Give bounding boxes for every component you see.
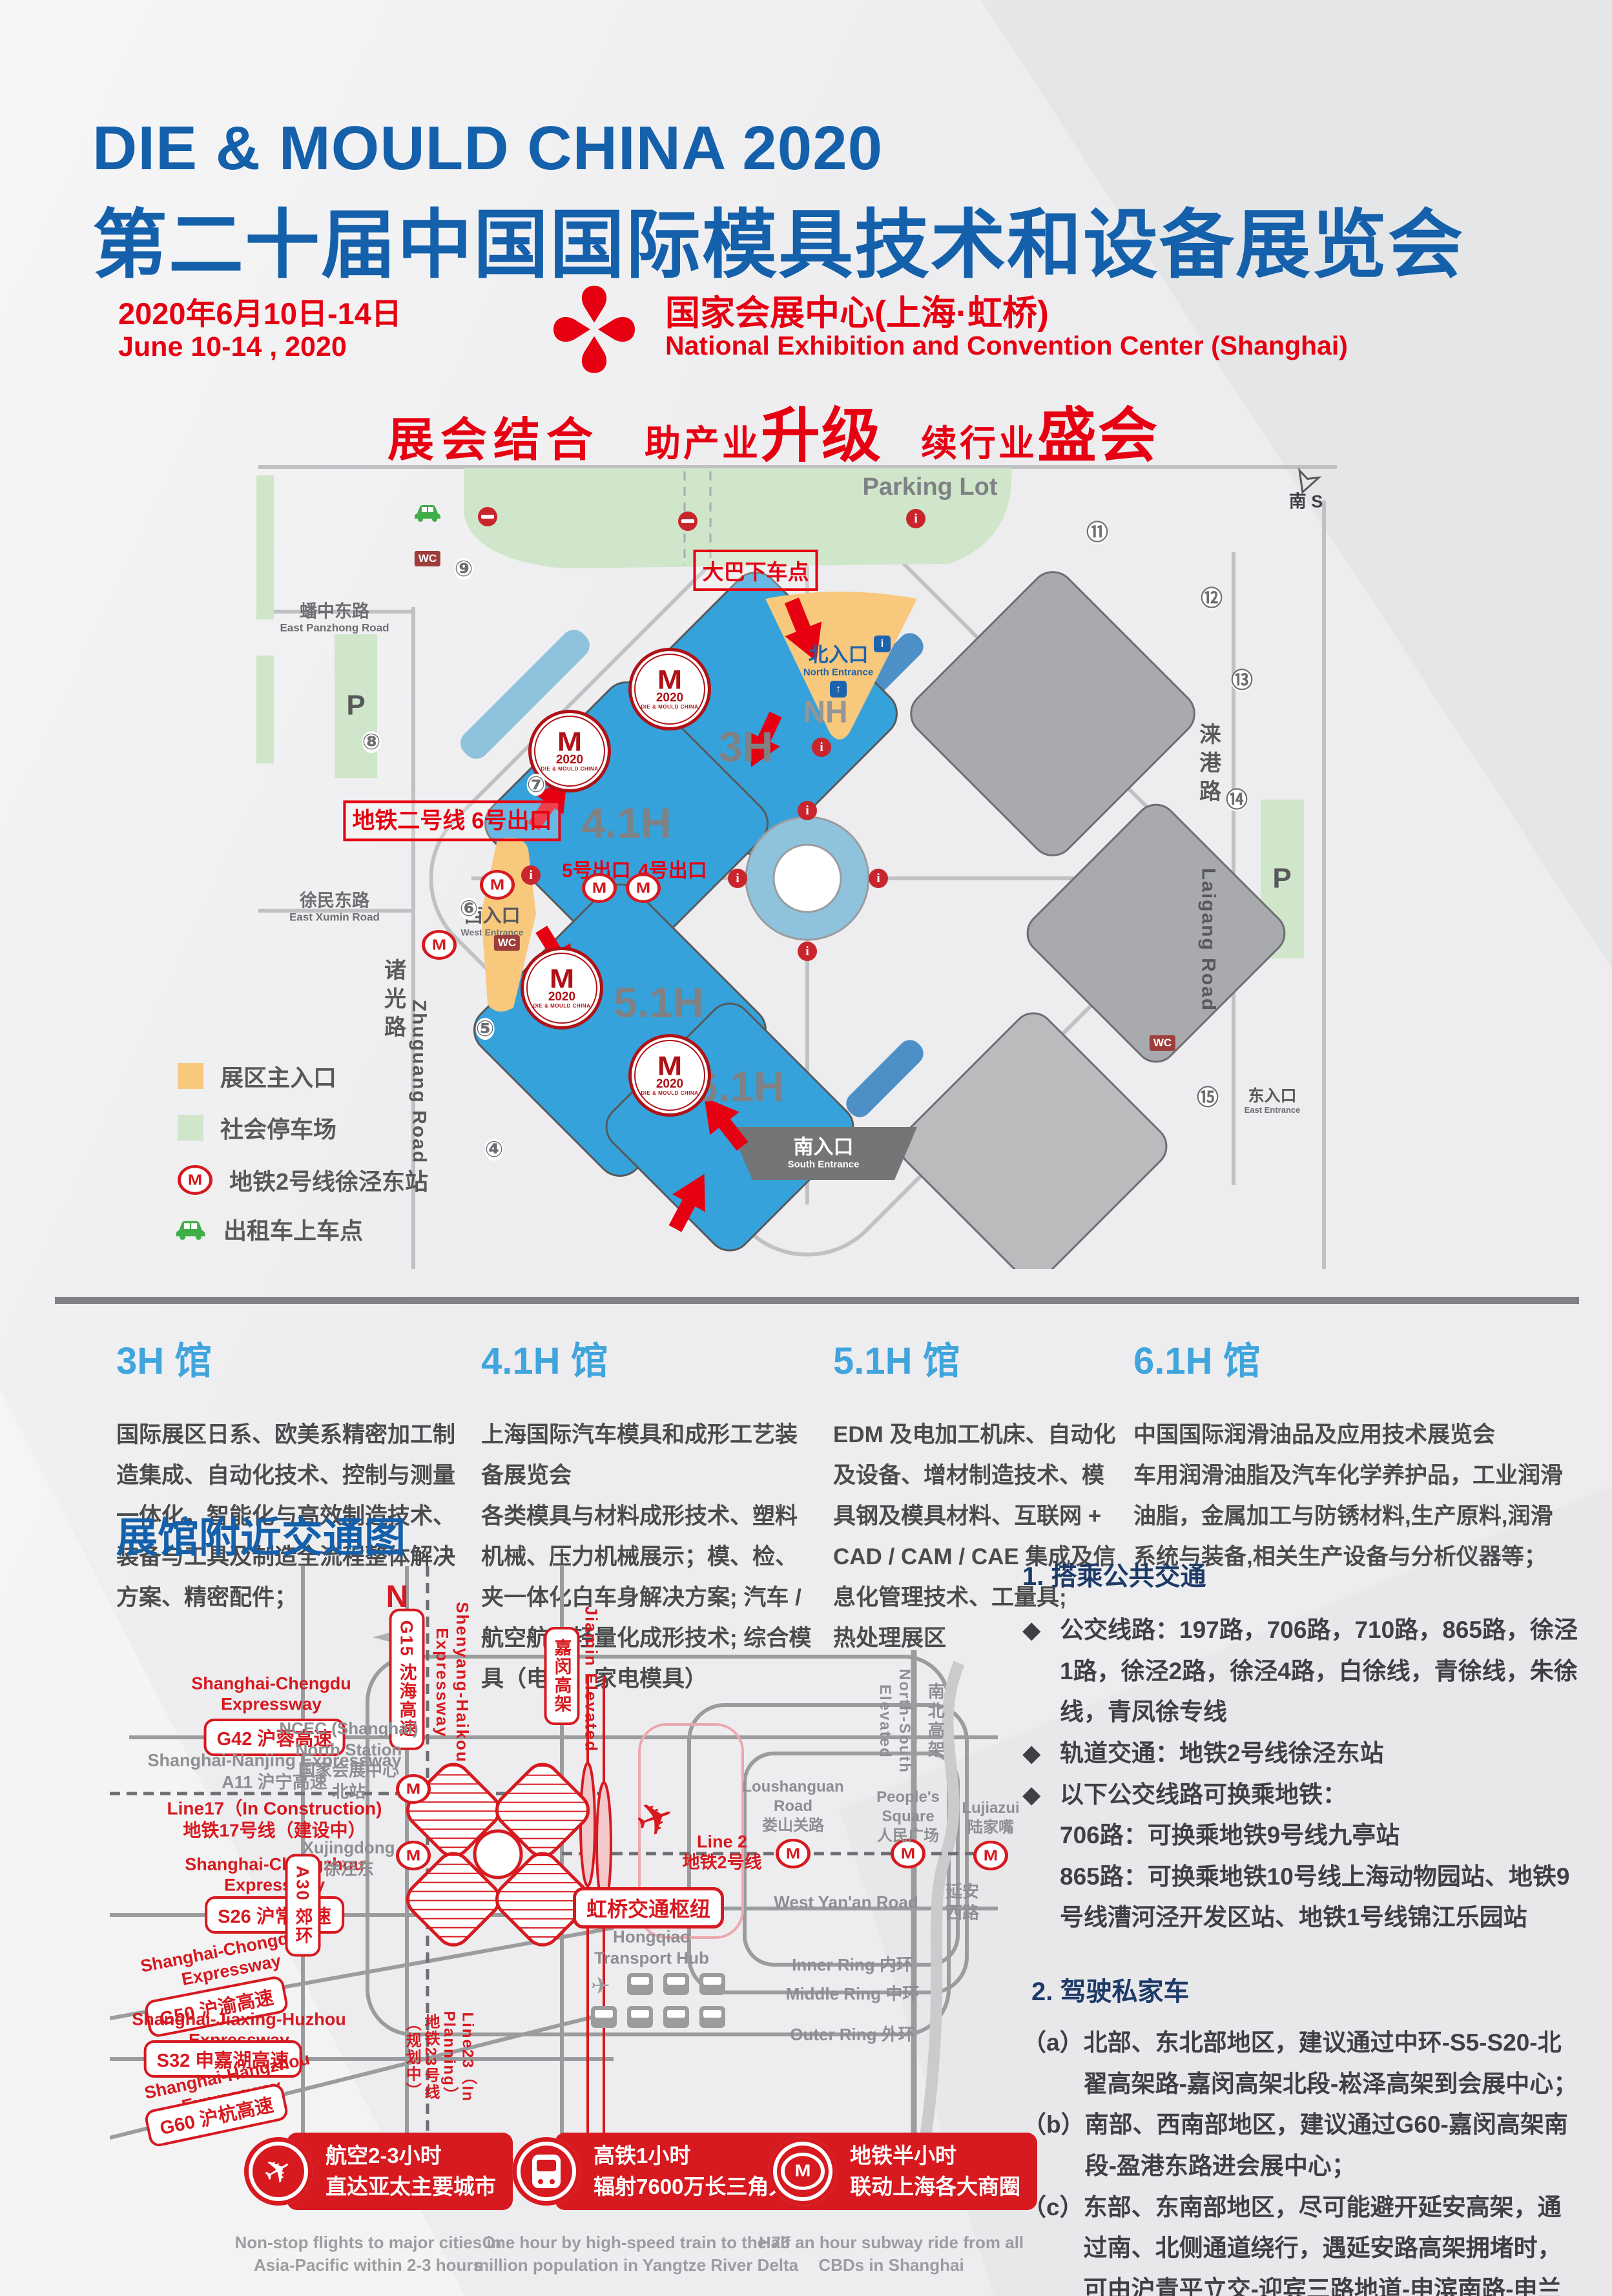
hall-info-highlight: 上海国际汽车模具和成形工艺装备展览会 (481, 1414, 817, 1496)
metro-icon: M (626, 873, 661, 903)
bus-dropoff-label: 大巴下车点 (694, 550, 818, 591)
s26-badge: S26 沪常高速 (205, 1896, 344, 1934)
page-title-cn: 第二十届中国国际模具技术和设备展览会 (92, 184, 1464, 293)
parking-lot-label: Parking Lot (862, 473, 997, 502)
metro-icon: M (422, 930, 457, 960)
outer-ring-label: Outer Ring 外环 (790, 2024, 915, 2045)
rail-icon (699, 1973, 725, 1995)
middle-ring-label: Middle Ring 中环 (786, 1983, 920, 2005)
info-icon-red: i (521, 865, 541, 885)
ncec-north-label: NCEC (Shanghai) North Station 国家会展中心 北站 (279, 1718, 418, 1802)
north-entrance-label: 北入口 North Entrance (803, 644, 873, 678)
private-car-heading: 2. 驾驶私家车 (1022, 1970, 1578, 2008)
venue-en: National Exhibition and Convention Cente… (665, 331, 1348, 361)
metro-icon: M (396, 1841, 431, 1870)
diamond-bullet: ◆ (1022, 1609, 1060, 1733)
badge-caption-hsr: One hour by high-speed train to the 76 m… (474, 2231, 798, 2277)
transit-item: ◆公交线路：197路，706路，710路，865路，徐泾1路，徐泾2路，徐泾4路… (1022, 1609, 1578, 1733)
chengdu-expwy-label: Shanghai-Chengdu Expressway (191, 1673, 351, 1715)
gate-number: ⑫ (1201, 588, 1223, 610)
transit-map: M M M M M ✈ N Shanghai-Chengdu Expresswa… (110, 1566, 998, 2151)
legend-main-entrance: 展区主入口 (178, 1059, 336, 1093)
legend-public-parking: 社会停车场 (178, 1111, 336, 1144)
inner-ring-label: Inner Ring 内环 (792, 1954, 913, 1976)
metro-icon: M (776, 1839, 811, 1868)
station-lujiazui: Lujiazui 陆家嘴 (962, 1799, 1019, 1837)
dmc-logo-badge: M2020DIE & MOULD CHINA (628, 1034, 711, 1117)
metro-train-icon (663, 1973, 689, 1995)
coach-icon (663, 2006, 689, 2028)
metro-icon: M (480, 870, 515, 900)
train-icon (512, 2137, 581, 2206)
gate-number: ⑪ (1086, 522, 1108, 544)
badge-line1: 地铁半小时 (850, 2140, 1020, 2171)
metro-icon: M (769, 2137, 837, 2206)
road-panzhong: 蟠中东路 East Panzhong Road (280, 602, 389, 635)
hall-51h-label: 5.1H (614, 978, 703, 1028)
transport-badge-metro: M 地铁半小时联动上海各大商圈 (769, 2133, 1037, 2210)
south-entrance-label: 南入口 South Entrance (788, 1136, 860, 1170)
road-laigang-cn: 涞港路 (1195, 723, 1220, 808)
gate-number: ⑤ (476, 1018, 495, 1040)
taxi-icon (413, 502, 442, 522)
train-icon (627, 1973, 653, 1995)
station-peoples-square: People's Square 人民广场 (863, 1788, 953, 1846)
metro-exit6-label: 地铁二号线 6号出口 (343, 800, 561, 841)
hall-info-title: 6.1H 馆 (1133, 1330, 1566, 1385)
jiamin-en-label: Jiamin Elevated (581, 1606, 601, 1753)
wc-icon: WC (1150, 1035, 1175, 1051)
taxi-icon (591, 2006, 617, 2028)
metro-icon: M (582, 873, 617, 903)
transit-item: ◆以下公交线路可换乘地铁： (1022, 1774, 1578, 1815)
info-icon-red: i (798, 942, 817, 961)
east-entrance-label: 东入口 East Entrance (1245, 1087, 1301, 1115)
tram-icon (699, 2006, 725, 2028)
legend-taxi-point: 出租车上车点 (174, 1212, 363, 1246)
site-map: Parking Lot 大巴下车点 地铁二号线 6号出口 5号出口 4号出口 北… (110, 462, 1395, 1269)
legend-green-swatch (178, 1115, 203, 1141)
west-yanan-road-cn: 延安西路 (945, 1881, 980, 1923)
public-transit-heading: 1. 搭乘公共交通 (1022, 1555, 1578, 1593)
badge-line1: 航空2-3小时 (325, 2140, 496, 2171)
page-title-en: DIE & MOULD CHINA 2020 (92, 113, 883, 184)
taxi-icon (174, 1217, 207, 1241)
bus-icon (627, 2006, 653, 2028)
badge-line2: 联动上海各大商圈 (850, 2171, 1020, 2202)
hall-info-title: 5.1H 馆 (833, 1330, 1117, 1385)
gate-number: ⑬ (1231, 670, 1253, 692)
hall-3h-label: 3H (719, 723, 773, 772)
transit-item: 706路：可换乘地铁9号线九亭站 (1022, 1815, 1578, 1856)
shenhai-expwy-label: Shenyang-Haikou Expressway (432, 1602, 472, 1763)
indent (1022, 1815, 1060, 1856)
nh-label: NH (803, 694, 847, 730)
road-zhuguang-cn: 诸光路 (380, 958, 405, 1044)
legend-metro-station: M 地铁2号线徐泾东站 (178, 1163, 428, 1197)
road-laigang-en: Laigang Road (1197, 868, 1219, 1011)
transit-item: ◆轨道交通：地铁2号线徐泾东站 (1022, 1733, 1578, 1774)
gate-number: ⑭ (1226, 789, 1248, 811)
gate-number: ⑨ (455, 558, 473, 580)
indent (1022, 1856, 1060, 1938)
info-icon-red: i (798, 801, 817, 820)
badge-caption-flight: Non-stop flights to major cities in Asia… (234, 2231, 501, 2277)
north-south-elevated-cn: 南北高架 (925, 1682, 946, 1760)
slogan-part1: 展会结合 (387, 415, 599, 466)
west-yanan-road-en: West Yan'an Road (774, 1892, 918, 1913)
slogan: 展会结合助产业升级续行业盛会 (387, 388, 1159, 473)
badge-line2: 直达亚太主要城市 (325, 2171, 496, 2202)
legend-orange-swatch (178, 1063, 203, 1089)
info-icon-blue: i (874, 636, 891, 652)
line2-label: Line 2 地铁2号线 (682, 1832, 761, 1874)
diamond-bullet: ◆ (1022, 1733, 1060, 1774)
hall-info-title: 3H 馆 (116, 1330, 459, 1385)
car-item: （a）北部、东北部地区，建议通过中环-S5-S20-北翟高架路-嘉闵高架北段-崧… (1022, 2022, 1578, 2104)
dmc-logo-badge: M2020DIE & MOULD CHINA (628, 648, 711, 730)
hongqiao-hub-en: Hongqiao Transport Hub (594, 1927, 709, 1969)
transit-item: 865路：可换乘地铁10号线上海动物园站、地铁9号线漕河泾开发区站、地铁1号线锦… (1022, 1856, 1578, 1938)
venue-cn: 国家会展中心(上海·虹桥) (665, 284, 1049, 335)
gate-number: ⑮ (1197, 1087, 1219, 1109)
line17-label: Line17（In Construction) 地铁17号线（建设中） (167, 1797, 382, 1841)
parking-p-label: P (346, 690, 365, 723)
section-divider (55, 1297, 1579, 1304)
hall-41h-label: 4.1H (581, 799, 671, 848)
hall-info-title: 4.1H 馆 (481, 1330, 817, 1385)
wc-icon: WC (494, 935, 520, 951)
gate-number: ⑦ (527, 774, 546, 796)
metro-icon: M (973, 1841, 1008, 1870)
plane-icon: ✈ (244, 2137, 313, 2206)
badge-caption-metro: Half an hour subway ride from all CBDs i… (759, 2231, 1024, 2277)
hongqiao-hub-badge: 虹桥交通枢纽 (573, 1887, 724, 1929)
slogan-part2: 助产业 (645, 423, 761, 464)
jiamin-badge: 嘉闵高架 (544, 1627, 580, 1725)
xujingdong-label: Xujingdong 徐泾东 (303, 1837, 395, 1879)
info-icon-red: i (869, 869, 888, 888)
gate-number: ⑥ (460, 898, 479, 920)
car-item: （b）南部、西南部地区，建议通过G60-嘉闵高架南段-盈港东路进会展中心； (1022, 2104, 1578, 2186)
plane-icon: ✈ (591, 1973, 621, 2000)
info-icon-red: i (812, 738, 831, 757)
station-loushanguan: Loushanguan Road 娄山关路 (742, 1777, 843, 1836)
directions-panel: 1. 搭乘公共交通 ◆公交线路：197路，706路，710路，865路，徐泾1路… (1022, 1555, 1578, 2296)
line23-label: Line23（In Planning） 地铁23号线（规划中） (402, 2011, 476, 2104)
slogan-part2-big: 升级 (761, 403, 882, 469)
map-compass-south: 南 S (1289, 491, 1323, 512)
poster-page: DIE & MOULD CHINA 2020 第二十届中国国际模具技术和设备展览… (0, 0, 1612, 2296)
gate-number: ⑧ (362, 731, 381, 753)
event-date-en: June 10-14 , 2020 (118, 331, 347, 363)
dmc-logo-badge: M2020DIE & MOULD CHINA (521, 947, 603, 1029)
road-zhuguang-en: Zhuguang Road (408, 1000, 430, 1164)
no-entry-icon (678, 512, 697, 531)
no-entry-icon (478, 507, 497, 526)
road-xumin: 徐民东路 East Xumin Road (289, 891, 380, 924)
info-icon-red: i (728, 869, 747, 888)
expo-flower-logo (546, 278, 643, 381)
slogan-part3: 续行业 (921, 423, 1037, 464)
metro-icon: M (178, 1165, 212, 1195)
north-south-elevated-en: North-South Elevated (875, 1669, 914, 1774)
hub-transport-icons: ✈ (591, 1973, 729, 2028)
traffic-section-heading: 展馆附近交通图 (116, 1505, 406, 1564)
hall-info-61h: 6.1H 馆 中国国际润滑油品及应用技术展览会 车用润滑油脂及汽车化学养护品，工… (1133, 1330, 1566, 1577)
slogan-part3-big: 盛会 (1037, 403, 1159, 469)
info-icon-red: i (906, 509, 925, 528)
hall-info-highlight: 中国国际润滑油品及应用技术展览会 (1133, 1414, 1566, 1455)
item-marker: （a） (1022, 2022, 1084, 2104)
gate-number: ④ (485, 1139, 504, 1161)
wc-icon: WC (415, 551, 440, 566)
event-date-cn: 2020年6月10日-14日 (118, 289, 402, 333)
transport-badge-flight: ✈ 航空2-3小时直达亚太主要城市 (244, 2133, 513, 2210)
car-item: （c）东部、东南部地区，尽可能避开延安高架，通过南、北侧通道绕行，遇延安路高架拥… (1022, 2187, 1578, 2296)
diamond-bullet: ◆ (1022, 1774, 1060, 1815)
parking-p-label: P (1272, 863, 1291, 896)
